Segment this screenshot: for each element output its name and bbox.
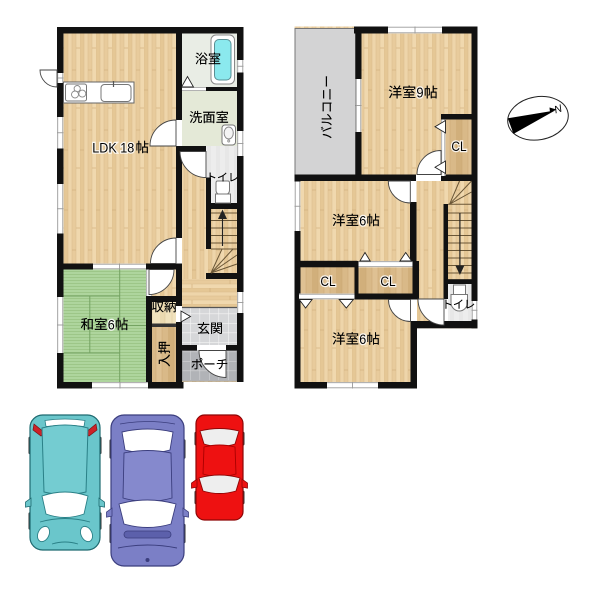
svg-text:6: 6	[108, 316, 115, 332]
svg-text:CL: CL	[320, 274, 336, 289]
svg-text:CL: CL	[380, 274, 396, 289]
svg-text:6: 6	[359, 331, 366, 347]
svg-text:CL: CL	[451, 139, 467, 154]
svg-text:LDK 18: LDK 18	[92, 139, 134, 155]
svg-text:9: 9	[416, 85, 423, 101]
svg-text:6: 6	[359, 212, 366, 228]
